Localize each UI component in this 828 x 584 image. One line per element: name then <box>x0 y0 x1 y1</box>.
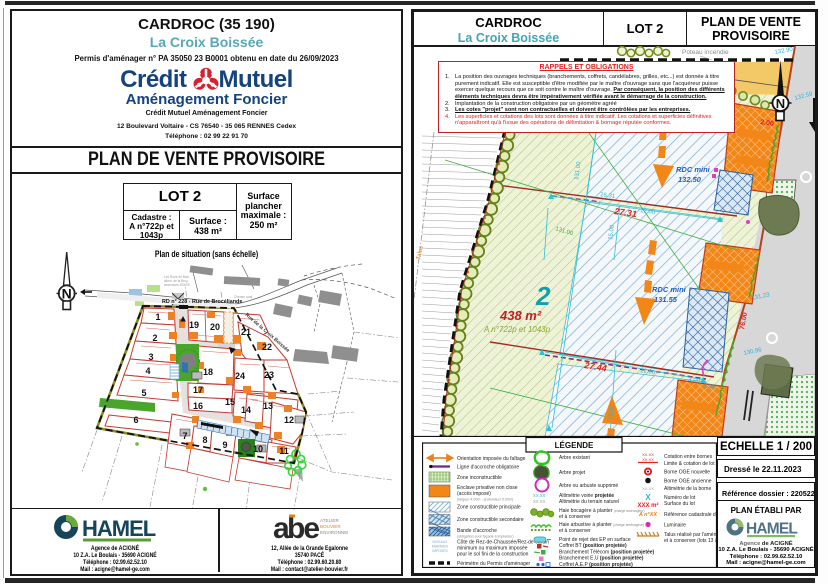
svg-text:ENVIRONNEMENT: ENVIRONNEMENT <box>320 530 348 535</box>
svg-text:HAMEL: HAMEL <box>82 516 156 541</box>
svg-text:Arbre projet: Arbre projet <box>559 470 586 476</box>
svg-text:Coffret A.E.P (position projet: Coffret A.E.P (position projetée) <box>559 562 633 568</box>
svg-text:Périmètre du Permis d'aménager: Périmètre du Permis d'aménager <box>457 561 531 567</box>
svg-text:438 m²: 438 m² <box>499 308 542 323</box>
svg-text:BOUVIER: BOUVIER <box>320 524 341 529</box>
svg-text:X: X <box>645 493 651 502</box>
svg-text:MINI/MAXI: MINI/MAXI <box>432 545 448 549</box>
svg-text:1: 1 <box>155 312 160 322</box>
svg-text:RDC mini: RDC mini <box>676 165 711 174</box>
svg-text:XX.XX: XX.XX <box>642 486 654 491</box>
svg-text:et à conserver: et à conserver <box>559 514 591 520</box>
svg-text:Surface du lot: Surface du lot <box>664 501 695 507</box>
svg-text:8: 8 <box>202 435 207 445</box>
svg-text:Altimétrie de la borne: Altimétrie de la borne <box>664 486 711 492</box>
svg-text:6: 6 <box>133 415 138 425</box>
svg-text:22: 22 <box>262 342 272 352</box>
svg-text:XX.XX: XX.XX <box>533 493 546 498</box>
svg-text:Borne OGE nouvelle: Borne OGE nouvelle <box>664 470 710 476</box>
svg-text:3: 3 <box>148 352 153 362</box>
svg-text:Coffret BT (position projetée): Coffret BT (position projetée) <box>559 543 627 549</box>
svg-text:NIVEAUX: NIVEAUX <box>433 540 449 544</box>
svg-text:24: 24 <box>235 371 245 381</box>
svg-text:131.55: 131.55 <box>654 295 678 304</box>
svg-text:9: 9 <box>222 440 227 450</box>
svg-text:132.50: 132.50 <box>678 175 702 184</box>
svg-text:2: 2 <box>535 281 551 311</box>
svg-text:7: 7 <box>182 431 187 441</box>
svg-text:XX.XX: XX.XX <box>533 499 546 504</box>
svg-text:(largeur 4.00m - profondeur 5.: (largeur 4.00m - profondeur 5.00m) <box>457 498 513 502</box>
svg-text:et à conserver: et à conserver <box>559 528 591 534</box>
svg-text:132.90: 132.90 <box>774 47 794 56</box>
svg-text:Limite & cotation de lot: Limite & cotation de lot <box>664 461 715 467</box>
svg-text:XXX m²: XXX m² <box>637 502 658 509</box>
svg-text:21: 21 <box>241 327 251 337</box>
svg-text:23: 23 <box>264 370 274 380</box>
svg-text:4: 4 <box>145 366 150 376</box>
svg-text:10: 10 <box>253 444 263 454</box>
svg-text:Arbre ou arbuste supprimé: Arbre ou arbuste supprimé <box>559 483 618 489</box>
svg-text:et à conserver (lots 13 à 18): et à conserver (lots 13 à 18) <box>664 538 717 544</box>
svg-text:Poteau incendie: Poteau incendie <box>682 49 729 56</box>
svg-text:16: 16 <box>193 401 203 411</box>
svg-text:Arbre existant: Arbre existant <box>559 455 590 461</box>
svg-text:(accès imposé): (accès imposé) <box>457 491 491 497</box>
svg-text:RDC mini: RDC mini <box>652 285 687 294</box>
svg-text:20: 20 <box>210 322 220 332</box>
svg-text:11: 11 <box>279 446 289 456</box>
svg-text:Orientation imposée du faîtage: Orientation imposée du faîtage <box>457 456 526 462</box>
svg-text:13: 13 <box>263 401 273 411</box>
svg-text:ATELIER: ATELIER <box>320 518 339 523</box>
svg-text:Branchement E.U (position proj: Branchement E.U (position projetée) <box>559 556 644 562</box>
svg-text:12: 12 <box>284 415 294 425</box>
svg-text:N: N <box>776 96 785 111</box>
svg-text:Zone constructible secondaire: Zone constructible secondaire <box>457 517 524 523</box>
svg-text:Référence cadastrale du lot: Référence cadastrale du lot <box>664 512 717 518</box>
svg-text:14: 14 <box>241 405 251 415</box>
svg-text:N: N <box>62 286 72 302</box>
svg-text:pour le sol fini de la constru: pour le sol fini de la construction <box>457 552 529 558</box>
svg-text:Zone inconstructible: Zone inconstructible <box>457 475 502 481</box>
svg-text:19: 19 <box>189 320 199 330</box>
svg-text:Altimétrie du terrain naturel: Altimétrie du terrain naturel <box>559 499 619 505</box>
svg-text:Bande d'accroche: Bande d'accroche <box>457 528 497 534</box>
svg-text:RD n° 228 - Rue de Brocéliand: RD n° 228 - Rue de Brocéliande <box>162 299 242 305</box>
svg-text:Cotation entre bornes: Cotation entre bornes <box>664 454 713 460</box>
svg-text:(obligation pour façade à impl: (obligation pour façade à implanter) <box>457 535 514 539</box>
svg-text:18: 18 <box>203 367 213 377</box>
svg-text:Branchement Télécom (position: Branchement Télécom (position projetée) <box>559 549 655 555</box>
svg-text:HAMEL: HAMEL <box>746 521 797 538</box>
svg-text:Talus: Talus <box>416 245 425 260</box>
svg-text:IMPOSÉS: IMPOSÉS <box>432 548 448 553</box>
svg-text:A n°722p et 1043p: A n°722p et 1043p <box>483 325 551 334</box>
svg-text:LÉGENDE: LÉGENDE <box>555 441 594 450</box>
svg-text:XX.XX: XX.XX <box>642 457 654 462</box>
svg-text:Borne OGE ancienne: Borne OGE ancienne <box>664 479 712 485</box>
svg-text:amenaces 205-25: amenaces 205-25 <box>164 283 190 287</box>
svg-text:Ligne d'accroche obligatoire: Ligne d'accroche obligatoire <box>457 465 519 471</box>
svg-text:17: 17 <box>193 385 203 395</box>
svg-text:5: 5 <box>141 388 146 398</box>
svg-text:Luminaire: Luminaire <box>664 523 686 529</box>
svg-text:2: 2 <box>152 333 157 343</box>
svg-text:15: 15 <box>225 397 235 407</box>
svg-text:A n°XX: A n°XX <box>638 512 658 518</box>
svg-text:Zone constructible principale: Zone constructible principale <box>457 505 521 511</box>
